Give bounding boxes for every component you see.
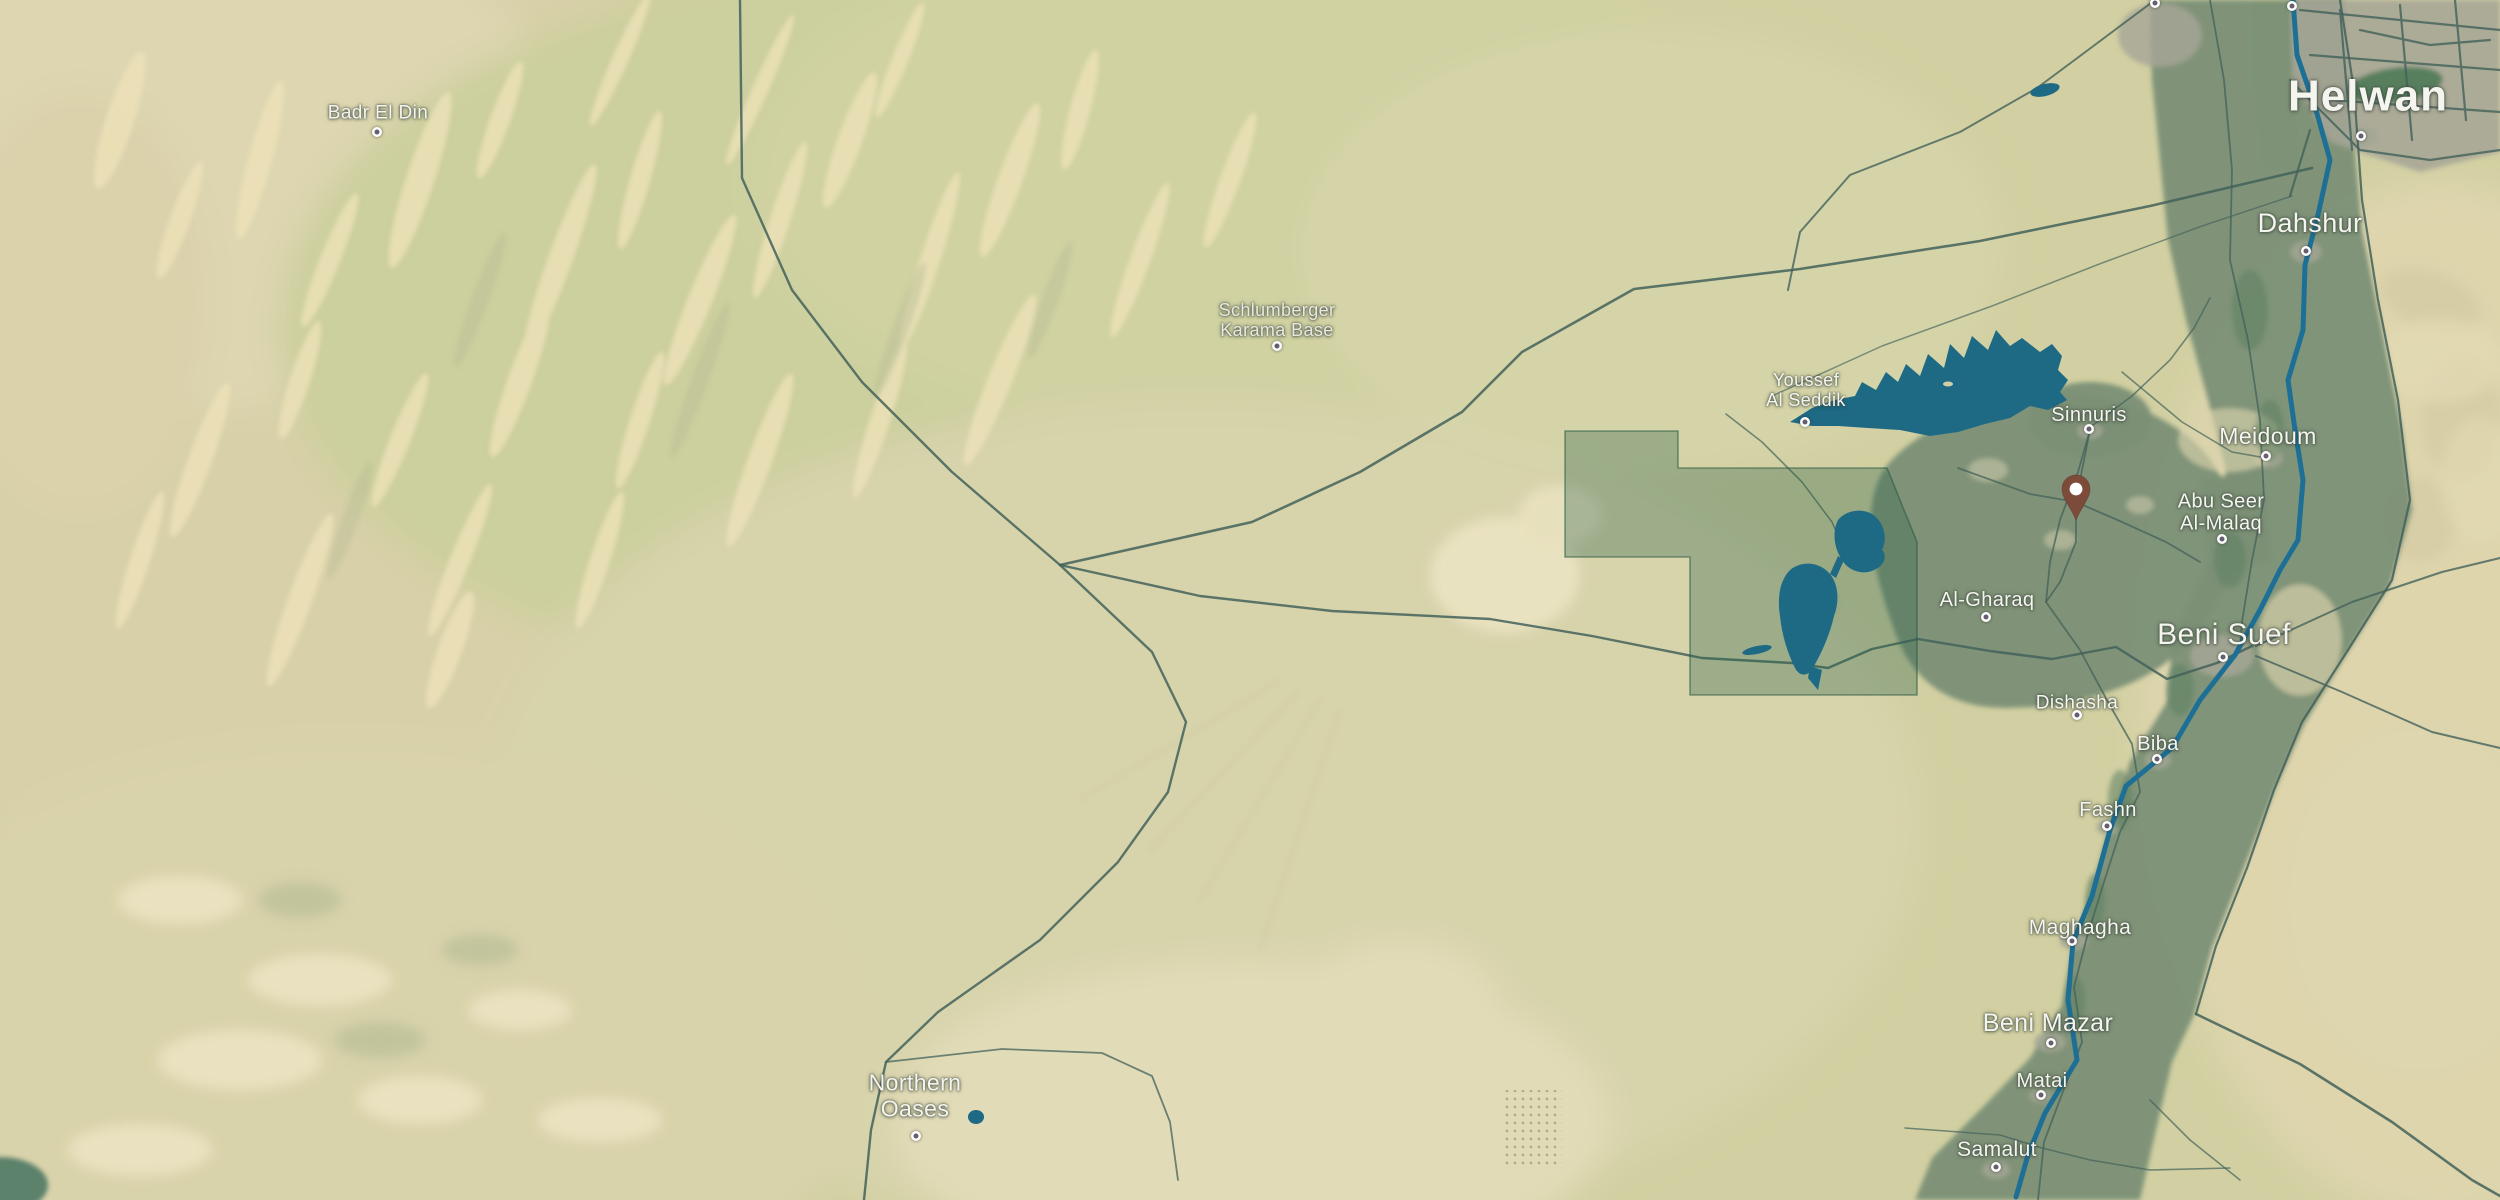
city-dot <box>2217 534 2227 544</box>
map-label-youssef-al-seddik[interactable]: Youssef Al Seddik <box>1766 370 1846 410</box>
map-label-northern-oases[interactable]: Northern Oases <box>869 1070 962 1122</box>
city-dot <box>2301 246 2311 256</box>
map-label-schlumberger-karama-base[interactable]: Schlumberger Karama Base <box>1219 300 1336 340</box>
map-label-samalut[interactable]: Samalut <box>1957 1138 2037 1162</box>
city-dot <box>2218 652 2228 662</box>
map-label-dahshur[interactable]: Dahshur <box>2258 208 2363 238</box>
city-dot <box>911 1131 921 1141</box>
city-dot <box>2036 1090 2046 1100</box>
map-graphics-layer <box>0 0 2500 1200</box>
city-dot <box>2356 131 2366 141</box>
irrigation-grid <box>1502 1090 1562 1166</box>
map-label-beni-mazar[interactable]: Beni Mazar <box>1983 1009 2113 1037</box>
map-label-matai[interactable]: Matai <box>2017 1070 2068 1092</box>
city-dot <box>1272 341 1282 351</box>
location-pin[interactable] <box>2061 474 2091 527</box>
map-canvas[interactable]: Badr El Din Schlumberger Karama Base You… <box>0 0 2500 1200</box>
map-label-biba[interactable]: Biba <box>2137 733 2179 755</box>
map-label-maghagha[interactable]: Maghagha <box>2029 916 2131 940</box>
city-dot <box>2261 451 2271 461</box>
city-dot <box>2152 754 2162 764</box>
pin-hole <box>2070 483 2083 496</box>
map-label-abu-seer-al-malaq[interactable]: Abu Seer Al-Malaq <box>2178 491 2265 536</box>
map-label-beni-suef[interactable]: Beni Suef <box>2157 618 2291 652</box>
city-dot <box>1800 417 1810 427</box>
map-label-badr-el-din[interactable]: Badr El Din <box>328 102 429 123</box>
city-dot <box>1981 612 1991 622</box>
city-dot <box>2287 1 2297 11</box>
city-dot <box>2046 1038 2056 1048</box>
city-dot <box>1991 1162 2001 1172</box>
city-dot <box>372 127 382 137</box>
map-label-fashn[interactable]: Fashn <box>2079 799 2137 821</box>
city-dot <box>2072 710 2082 720</box>
city-dot <box>2084 424 2094 434</box>
pond-northern-oases <box>968 1110 984 1124</box>
pin-body <box>2062 475 2090 520</box>
city-dot <box>2102 821 2112 831</box>
map-label-al-gharaq[interactable]: Al-Gharaq <box>1940 589 2035 611</box>
map-label-helwan[interactable]: Helwan <box>2288 71 2448 120</box>
map-label-meidoum[interactable]: Meidoum <box>2219 424 2316 450</box>
city-dot <box>2067 936 2077 946</box>
map-label-sinnuris[interactable]: Sinnuris <box>2051 404 2126 426</box>
